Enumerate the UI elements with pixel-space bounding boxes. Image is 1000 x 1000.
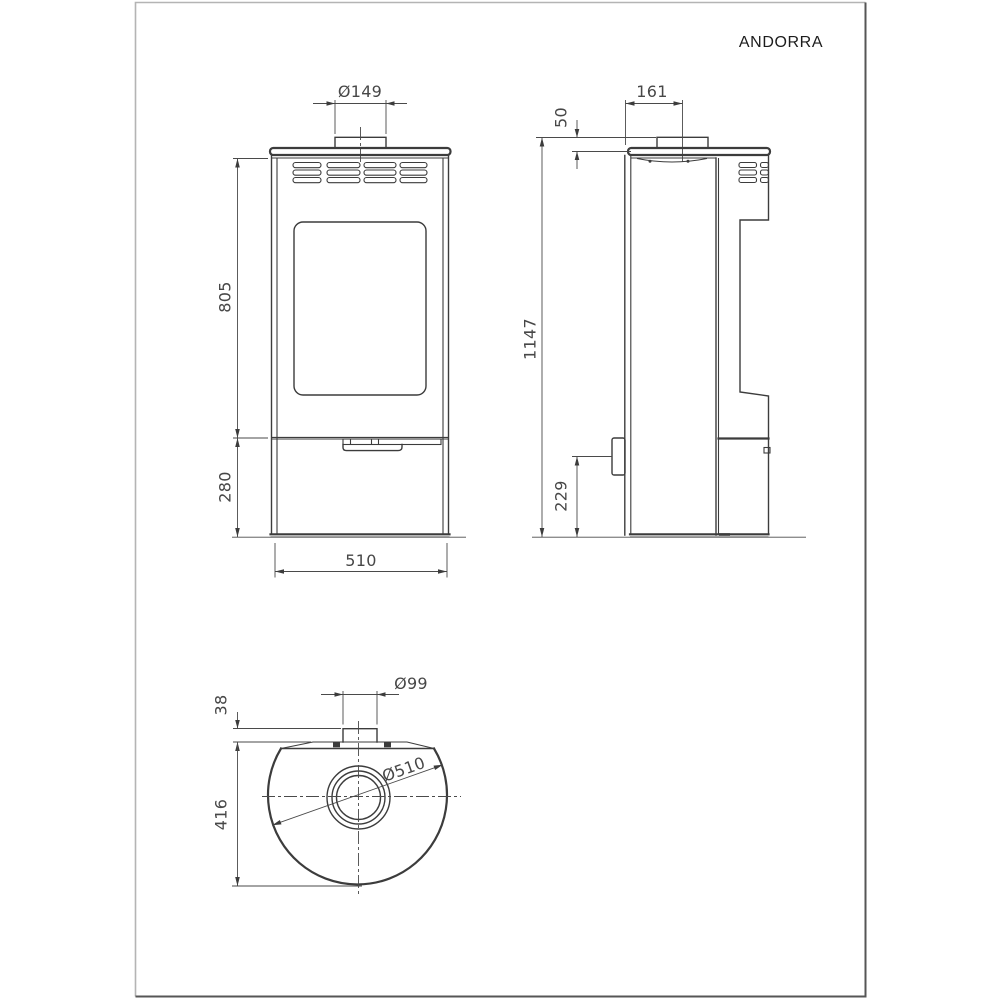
svg-text:Ø510: Ø510 — [380, 753, 428, 786]
front-body — [272, 156, 449, 534]
side-base — [630, 533, 769, 537]
front-door-glass — [294, 222, 426, 395]
front-vent-grille — [293, 163, 427, 183]
front-door-handle — [272, 437, 449, 450]
side-vent-grille — [739, 163, 769, 183]
side-view: 161 50 1147 229 — [521, 82, 807, 537]
top-dim-body-diameter: Ø510 — [272, 753, 443, 825]
side-dim-handle-height: 229 — [552, 457, 613, 538]
top-back-band — [281, 742, 434, 749]
svg-text:Ø149: Ø149 — [338, 82, 382, 101]
svg-text:416: 416 — [212, 799, 231, 830]
side-dim-total-height: 1147 — [521, 138, 545, 538]
svg-text:Ø99: Ø99 — [394, 674, 428, 693]
svg-text:510: 510 — [345, 551, 376, 570]
side-flue-collar — [657, 100, 708, 162]
top-rear-outlet-stub — [343, 729, 377, 742]
svg-text:280: 280 — [216, 471, 235, 502]
front-dim-flue-diameter: Ø149 — [313, 82, 407, 134]
front-dim-upper-height: 805 — [216, 159, 269, 439]
svg-text:805: 805 — [216, 281, 235, 312]
top-view: Ø99 38 Ø510 416 — [212, 674, 462, 896]
side-body — [625, 156, 719, 536]
side-top-plate — [628, 148, 770, 155]
svg-text:38: 38 — [212, 695, 231, 716]
side-door-handle — [612, 438, 625, 475]
svg-text:229: 229 — [552, 480, 571, 511]
front-base — [271, 534, 450, 537]
svg-text:161: 161 — [636, 82, 667, 101]
front-flue-collar — [335, 127, 386, 162]
front-dim-width: 510 — [275, 543, 447, 578]
top-dim-depth: 416 — [212, 742, 363, 886]
svg-text:1147: 1147 — [521, 318, 540, 360]
sheet-frame — [136, 3, 866, 997]
side-dim-collar-height: 50 — [536, 107, 656, 169]
technical-drawing: ANDORRA — [0, 0, 1000, 1000]
side-dim-flue-offset: 161 — [626, 82, 683, 145]
side-rear-panel — [719, 155, 771, 534]
front-dim-base-height: 280 — [216, 438, 240, 537]
drawing-title: ANDORRA — [739, 34, 823, 51]
drawing-sheet: ANDORRA — [0, 0, 1000, 1000]
front-view: Ø149 805 280 510 — [216, 82, 467, 578]
svg-text:50: 50 — [552, 107, 571, 128]
top-dim-outlet-diameter: Ø99 — [321, 674, 428, 725]
